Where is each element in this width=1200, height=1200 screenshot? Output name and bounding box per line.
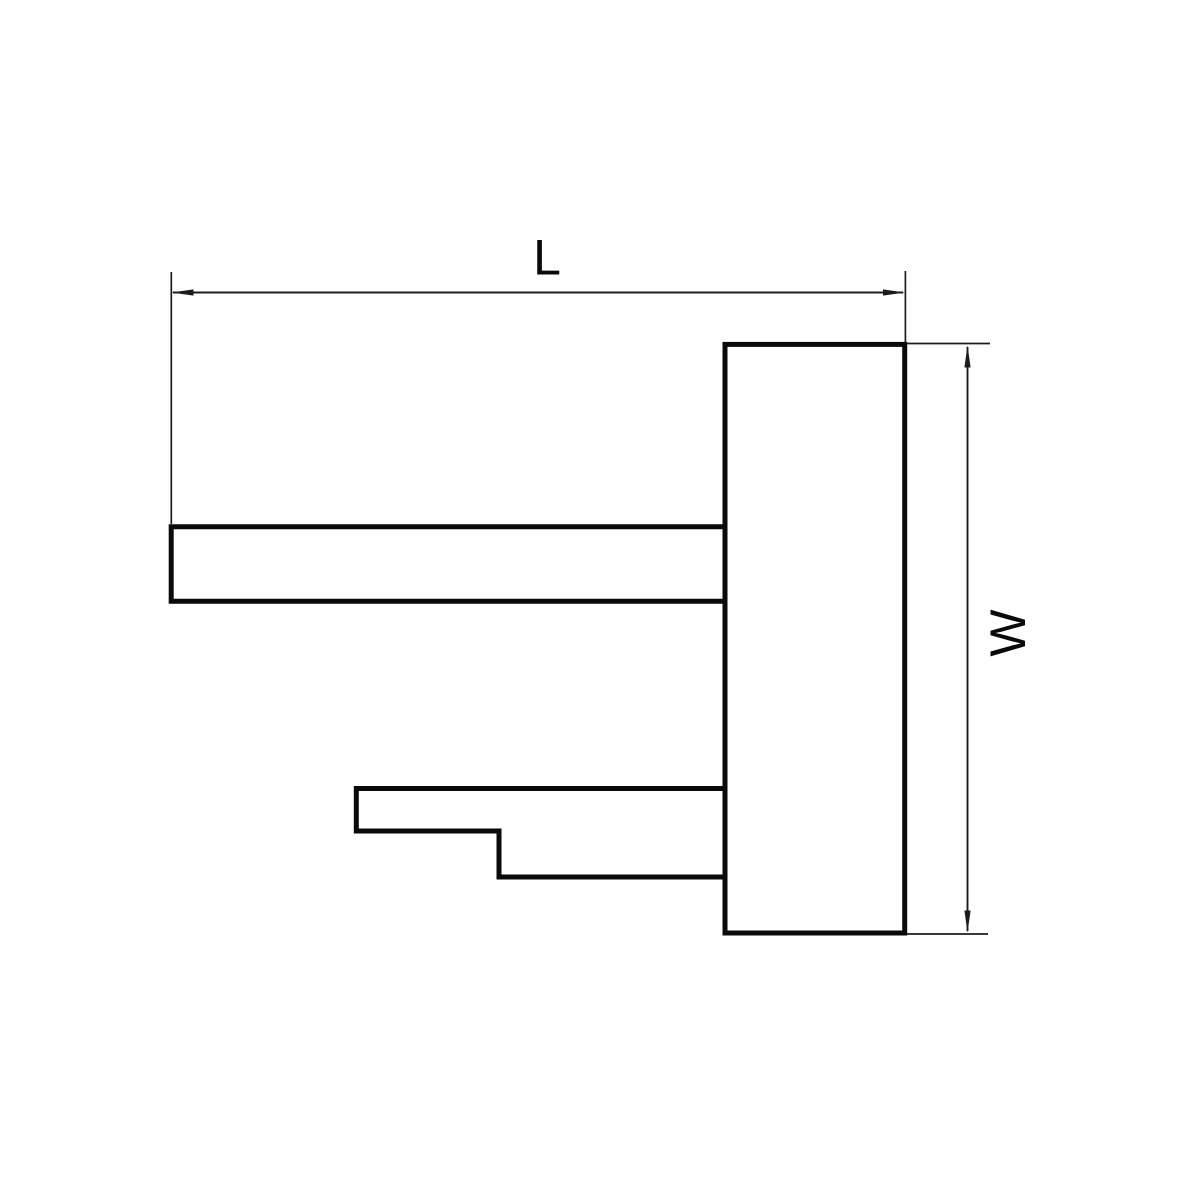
svg-text:W: W [980,609,1036,657]
svg-text:L: L [533,230,561,286]
